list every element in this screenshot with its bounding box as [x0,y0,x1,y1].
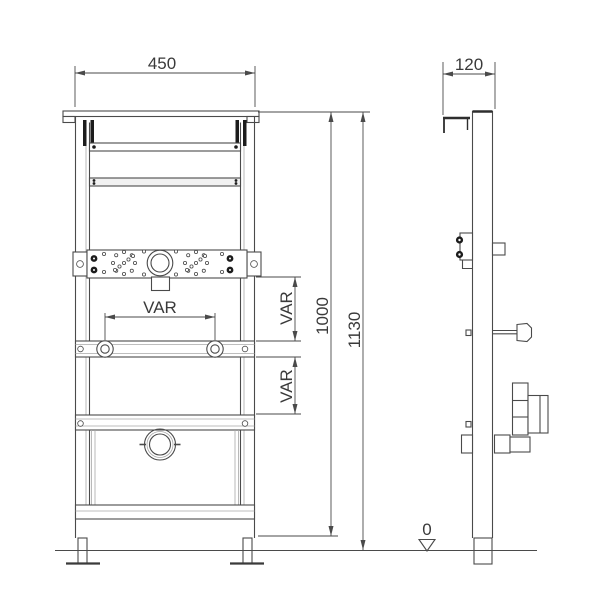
lower-rail [76,415,255,430]
datum-triangle-icon [419,540,435,552]
dim-front-width: 450 [75,54,255,107]
dim-var-horizontal-label: VAR [143,298,177,317]
pipe-clamp-left [97,341,113,357]
dim-var-upper: VAR [277,277,298,341]
side-inlet-rod [466,324,532,342]
side-view [443,111,548,564]
technical-drawing: 450 120 VAR [0,0,600,600]
side-top-bracket [443,118,470,133]
dim-var-upper-label: VAR [277,291,296,325]
drawing-canvas: 450 120 VAR [0,0,600,600]
dim-side-depth: 120 [443,55,495,115]
upper-crossbar [90,143,241,151]
clamp-rail [76,341,255,357]
floor-datum: 0 [419,520,435,551]
dim-total-height-label: 1130 [345,312,364,349]
front-left-rail [76,117,90,539]
pipe-clamp-right [207,341,223,357]
mounting-plate [73,250,261,291]
dim-side-depth-label: 120 [455,55,483,74]
waste-pipe-outlet [140,429,181,460]
side-wall-block [493,243,506,255]
dim-var-lower: VAR [277,357,298,414]
dim-var-horizontal: VAR [105,298,215,340]
dim-front-width-label: 450 [148,54,176,73]
front-right-rail [241,117,255,539]
side-valve-assembly [462,383,549,453]
floor-datum-label: 0 [422,520,431,539]
front-view [63,111,264,564]
dim-frame-height-label: 1000 [313,297,332,335]
second-crossbar [90,178,241,186]
bottom-member [76,505,255,519]
dim-var-lower-label: VAR [277,369,296,403]
rail-insert-marks [83,120,247,146]
dimensions: 450 120 VAR [75,54,495,551]
side-channel [473,111,493,538]
lower-panel [92,429,239,505]
dim-total-height: 1130 [345,112,366,550]
dim-frame-height: 1000 [313,112,334,536]
side-plate-bracket [456,233,473,269]
